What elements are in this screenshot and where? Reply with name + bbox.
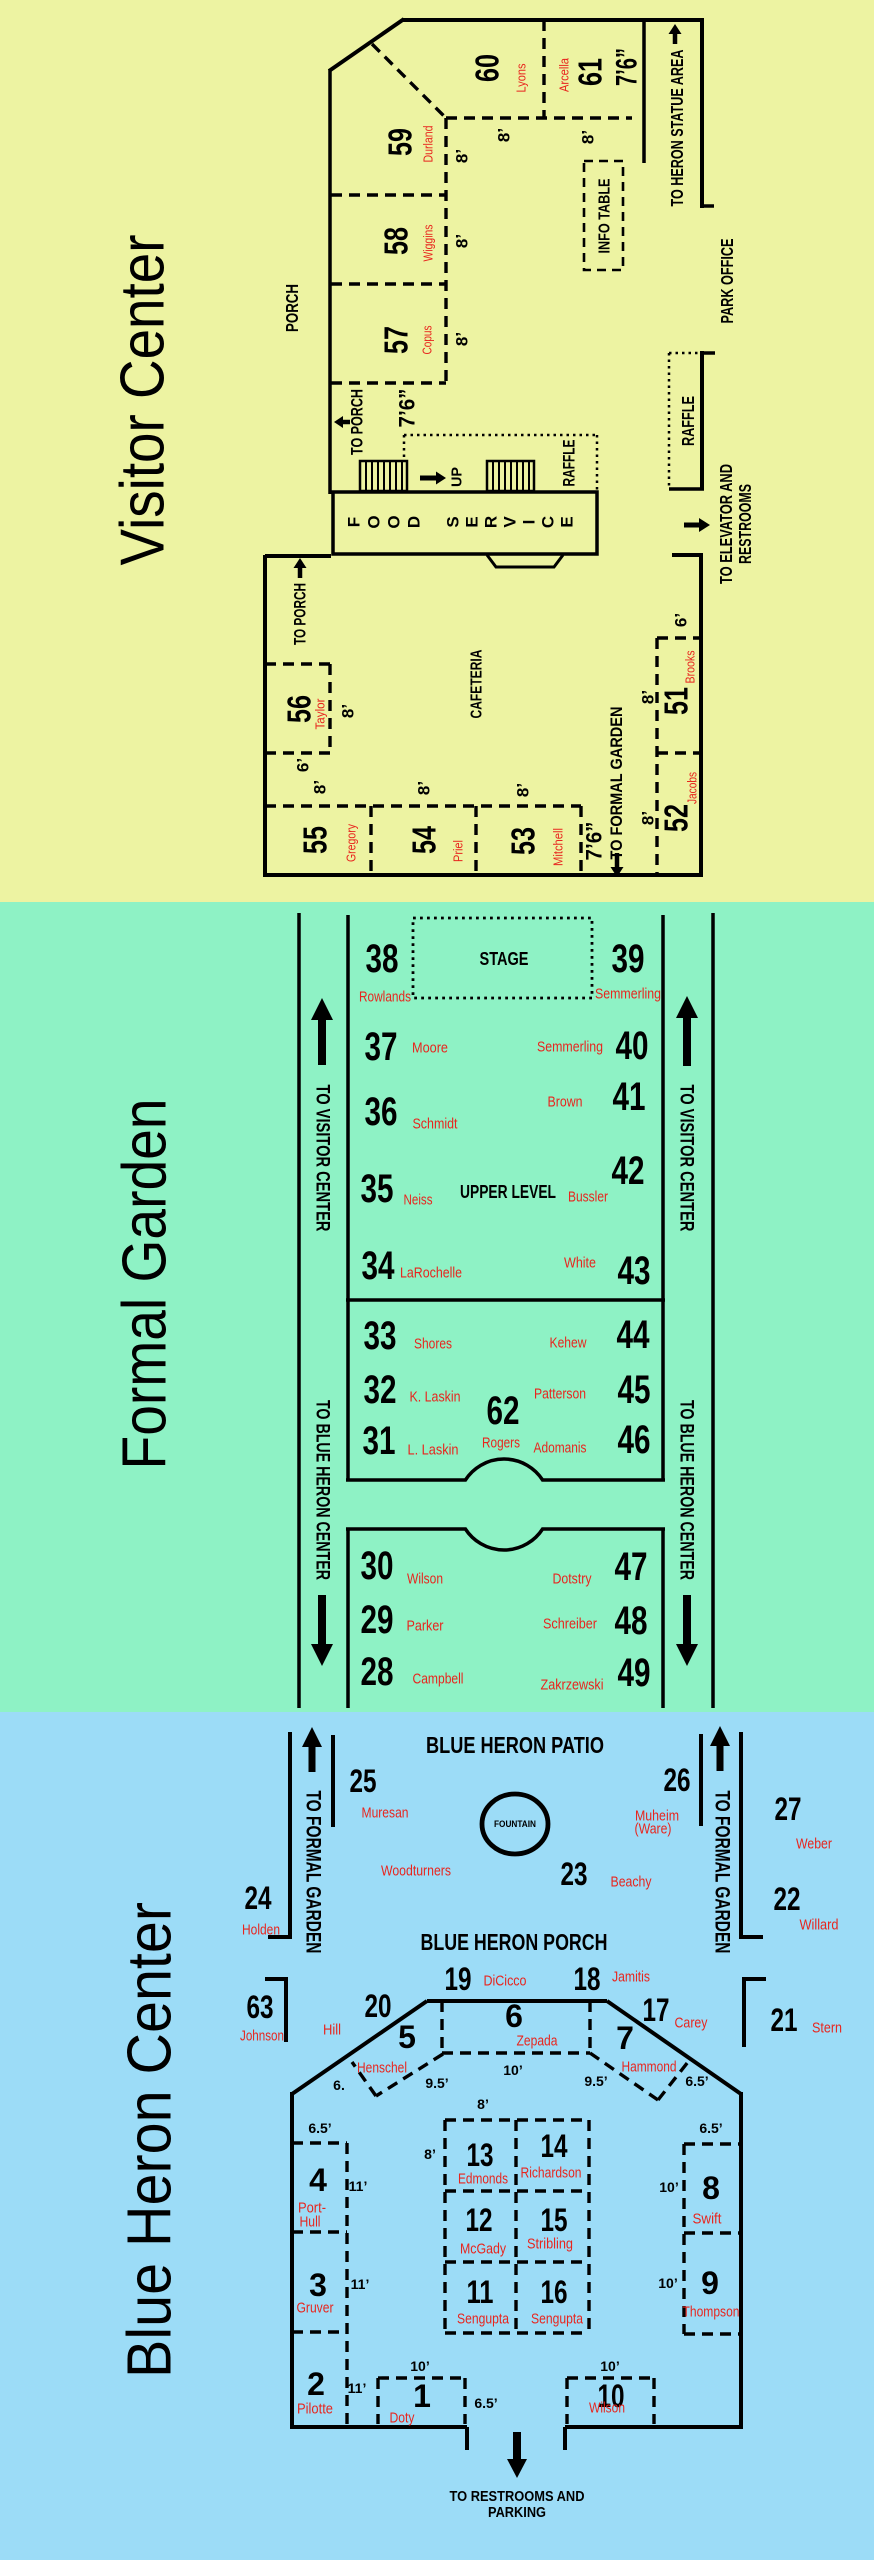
svg-text:Jacobs: Jacobs bbox=[685, 772, 700, 804]
svg-text:28: 28 bbox=[361, 1650, 394, 1694]
svg-text:8’: 8’ bbox=[639, 811, 658, 825]
svg-text:6: 6 bbox=[505, 1998, 523, 2034]
svg-text:8’: 8’ bbox=[495, 128, 514, 142]
svg-text:Visitor Center: Visitor Center bbox=[109, 235, 178, 566]
svg-text:1: 1 bbox=[413, 2378, 431, 2414]
svg-text:11’: 11’ bbox=[351, 2276, 370, 2292]
svg-text:Pilotte: Pilotte bbox=[297, 2401, 333, 2418]
svg-text:Dotstry: Dotstry bbox=[553, 1571, 592, 1588]
svg-text:E: E bbox=[558, 516, 577, 527]
svg-text:Wilson: Wilson bbox=[407, 1571, 443, 1588]
svg-text:Taylor: Taylor bbox=[313, 698, 328, 730]
svg-text:Mitchell: Mitchell bbox=[551, 828, 566, 866]
svg-text:40: 40 bbox=[616, 1024, 649, 1068]
svg-text:10’: 10’ bbox=[659, 2179, 678, 2195]
svg-text:DiCicco: DiCicco bbox=[484, 1973, 527, 1990]
svg-text:Schmidt: Schmidt bbox=[413, 1116, 459, 1133]
svg-text:CAFETERIA: CAFETERIA bbox=[469, 649, 486, 718]
svg-text:BLUE HERON PATIO: BLUE HERON PATIO bbox=[426, 1732, 604, 1758]
svg-text:S: S bbox=[444, 516, 463, 527]
svg-text:Arcella: Arcella bbox=[557, 57, 572, 92]
svg-text:8’: 8’ bbox=[514, 783, 533, 797]
svg-text:F: F bbox=[345, 517, 364, 527]
svg-text:9: 9 bbox=[701, 2265, 719, 2301]
svg-text:39: 39 bbox=[612, 937, 645, 981]
svg-text:61: 61 bbox=[572, 58, 609, 86]
svg-text:24: 24 bbox=[245, 1880, 272, 1916]
svg-text:8: 8 bbox=[702, 2170, 720, 2206]
svg-text:Rowlands: Rowlands bbox=[359, 989, 411, 1006]
svg-text:8’: 8’ bbox=[453, 149, 472, 163]
svg-text:14: 14 bbox=[541, 2128, 568, 2164]
svg-text:Beachy: Beachy bbox=[611, 1874, 652, 1891]
svg-text:6.5’: 6.5’ bbox=[308, 2120, 331, 2136]
svg-text:59: 59 bbox=[382, 128, 419, 156]
svg-text:Stribling: Stribling bbox=[527, 2236, 573, 2253]
svg-text:TO ELEVATOR AND: TO ELEVATOR AND bbox=[716, 464, 736, 584]
svg-text:36: 36 bbox=[365, 1090, 398, 1134]
svg-text:Semmerling: Semmerling bbox=[595, 986, 661, 1003]
svg-text:Gregory: Gregory bbox=[344, 824, 359, 862]
svg-text:Parker: Parker bbox=[407, 1618, 444, 1635]
svg-text:5: 5 bbox=[398, 2019, 416, 2055]
svg-text:6.5’: 6.5’ bbox=[699, 2120, 722, 2136]
svg-text:32: 32 bbox=[364, 1368, 397, 1412]
svg-text:Muresan: Muresan bbox=[362, 1805, 409, 1822]
svg-text:26: 26 bbox=[664, 1762, 691, 1798]
svg-text:49: 49 bbox=[618, 1651, 651, 1695]
svg-text:Hull: Hull bbox=[300, 2214, 321, 2231]
svg-text:K. Laskin: K. Laskin bbox=[410, 1389, 461, 1406]
svg-text:I: I bbox=[520, 520, 539, 525]
svg-text:Brown: Brown bbox=[548, 1094, 583, 1111]
svg-text:FOUNTAIN: FOUNTAIN bbox=[494, 1819, 536, 1829]
svg-text:Jamitis: Jamitis bbox=[612, 1969, 650, 1986]
svg-text:46: 46 bbox=[618, 1418, 651, 1462]
svg-text:Stern: Stern bbox=[812, 2020, 842, 2037]
svg-text:6.: 6. bbox=[333, 2077, 345, 2093]
svg-text:Doty: Doty bbox=[390, 2410, 415, 2427]
svg-text:47: 47 bbox=[615, 1545, 648, 1589]
svg-text:TO BLUE HERON CENTER: TO BLUE HERON CENTER bbox=[312, 1400, 333, 1580]
svg-text:LaRochelle: LaRochelle bbox=[400, 1265, 462, 1282]
svg-text:38: 38 bbox=[366, 937, 399, 981]
svg-text:V: V bbox=[501, 516, 520, 528]
svg-text:BLUE HERON PORCH: BLUE HERON PORCH bbox=[421, 1929, 608, 1955]
svg-text:PARKING: PARKING bbox=[488, 2505, 546, 2521]
svg-text:10’: 10’ bbox=[658, 2275, 677, 2291]
svg-text:Priel: Priel bbox=[451, 840, 466, 862]
svg-text:E: E bbox=[463, 516, 482, 527]
svg-text:C: C bbox=[539, 516, 558, 528]
svg-text:11: 11 bbox=[467, 2274, 494, 2310]
svg-text:TO PORCH: TO PORCH bbox=[291, 583, 310, 645]
svg-text:Edmonds: Edmonds bbox=[458, 2171, 508, 2188]
svg-text:Patterson: Patterson bbox=[534, 1386, 586, 1403]
svg-text:4: 4 bbox=[309, 2162, 327, 2198]
svg-text:TO PORCH: TO PORCH bbox=[348, 389, 367, 455]
svg-text:Richardson: Richardson bbox=[521, 2165, 582, 2182]
svg-text:23: 23 bbox=[561, 1856, 588, 1892]
svg-text:(Ware): (Ware) bbox=[635, 1821, 672, 1838]
svg-text:TO HERON STATUE AREA: TO HERON STATUE AREA bbox=[667, 49, 687, 206]
svg-text:22: 22 bbox=[774, 1881, 801, 1917]
svg-text:O: O bbox=[365, 515, 384, 528]
svg-text:8’: 8’ bbox=[339, 704, 358, 718]
svg-text:Kehew: Kehew bbox=[550, 1335, 587, 1352]
svg-text:Willard: Willard bbox=[800, 1917, 839, 1934]
svg-text:UP: UP bbox=[449, 467, 466, 487]
svg-text:58: 58 bbox=[378, 227, 415, 255]
svg-text:8’: 8’ bbox=[453, 234, 472, 248]
svg-text:18: 18 bbox=[574, 1961, 601, 1997]
svg-text:11’: 11’ bbox=[349, 2178, 368, 2194]
svg-text:Moore: Moore bbox=[412, 1040, 448, 1057]
svg-text:8’: 8’ bbox=[579, 130, 598, 144]
svg-text:9.5’: 9.5’ bbox=[425, 2075, 448, 2091]
svg-text:TO FORMAL GARDEN: TO FORMAL GARDEN bbox=[711, 1791, 734, 1954]
svg-text:R: R bbox=[482, 516, 501, 528]
svg-text:29: 29 bbox=[361, 1598, 394, 1642]
svg-text:10’: 10’ bbox=[410, 2358, 429, 2374]
svg-text:12: 12 bbox=[466, 2202, 493, 2238]
svg-text:60: 60 bbox=[469, 54, 506, 82]
svg-text:Wiggins: Wiggins bbox=[421, 224, 436, 261]
svg-text:8’: 8’ bbox=[453, 332, 472, 346]
svg-text:Swift: Swift bbox=[693, 2211, 723, 2228]
svg-text:19: 19 bbox=[445, 1961, 472, 1997]
svg-text:43: 43 bbox=[618, 1249, 651, 1293]
svg-text:Brooks: Brooks bbox=[683, 650, 698, 683]
svg-text:Zepada: Zepada bbox=[517, 2033, 559, 2050]
svg-text:Thompson: Thompson bbox=[683, 2304, 740, 2321]
svg-text:11’: 11’ bbox=[348, 2380, 367, 2396]
svg-text:7’6”: 7’6” bbox=[395, 389, 420, 428]
svg-text:57: 57 bbox=[378, 326, 415, 354]
svg-text:20: 20 bbox=[365, 1988, 392, 2024]
svg-text:TO VISITOR CENTER: TO VISITOR CENTER bbox=[676, 1085, 697, 1232]
svg-text:27: 27 bbox=[775, 1791, 802, 1827]
svg-text:TO FORMAL GARDEN: TO FORMAL GARDEN bbox=[608, 707, 626, 860]
svg-text:Copus: Copus bbox=[420, 325, 435, 354]
svg-text:51: 51 bbox=[658, 687, 695, 715]
svg-text:25: 25 bbox=[350, 1763, 377, 1799]
svg-text:TO RESTROOMS AND: TO RESTROOMS AND bbox=[450, 2489, 585, 2505]
svg-text:Carey: Carey bbox=[675, 2015, 708, 2032]
svg-text:55: 55 bbox=[297, 826, 334, 854]
svg-text:10’: 10’ bbox=[600, 2358, 619, 2374]
svg-text:42: 42 bbox=[612, 1149, 645, 1193]
svg-text:21: 21 bbox=[771, 2002, 798, 2038]
svg-text:17: 17 bbox=[643, 1992, 670, 2028]
svg-text:7’6”: 7’6” bbox=[611, 48, 644, 86]
svg-text:48: 48 bbox=[615, 1599, 648, 1643]
svg-text:Hill: Hill bbox=[323, 2022, 341, 2039]
svg-text:7’6”: 7’6” bbox=[582, 822, 607, 861]
svg-text:54: 54 bbox=[406, 826, 443, 854]
svg-text:Adomanis: Adomanis bbox=[534, 1440, 587, 1457]
svg-text:McGady: McGady bbox=[460, 2241, 506, 2258]
svg-text:53: 53 bbox=[505, 827, 542, 855]
svg-text:Johnson: Johnson bbox=[240, 2028, 284, 2045]
svg-text:6.5’: 6.5’ bbox=[685, 2073, 708, 2089]
svg-text:TO BLUE HERON CENTER: TO BLUE HERON CENTER bbox=[676, 1400, 697, 1580]
svg-text:Shores: Shores bbox=[414, 1336, 452, 1353]
svg-text:45: 45 bbox=[618, 1368, 651, 1412]
svg-text:TO FORMAL GARDEN: TO FORMAL GARDEN bbox=[302, 1791, 325, 1954]
svg-text:Semmerling: Semmerling bbox=[537, 1039, 603, 1056]
svg-text:Neiss: Neiss bbox=[404, 1192, 433, 1209]
svg-text:Weber: Weber bbox=[796, 1836, 832, 1853]
svg-text:15: 15 bbox=[541, 2202, 568, 2238]
svg-text:8’: 8’ bbox=[424, 2146, 436, 2162]
svg-text:6’: 6’ bbox=[672, 613, 691, 627]
svg-text:Rogers: Rogers bbox=[482, 1435, 520, 1452]
svg-text:Lyons: Lyons bbox=[514, 63, 529, 92]
svg-text:31: 31 bbox=[363, 1419, 396, 1463]
svg-text:PORCH: PORCH bbox=[282, 284, 302, 332]
svg-text:Sengupta: Sengupta bbox=[457, 2311, 510, 2328]
svg-text:30: 30 bbox=[361, 1544, 394, 1588]
svg-text:Henschel: Henschel bbox=[357, 2060, 407, 2077]
svg-text:STAGE: STAGE bbox=[480, 949, 529, 969]
svg-text:8’: 8’ bbox=[415, 781, 434, 795]
svg-text:16: 16 bbox=[541, 2274, 568, 2310]
svg-text:44: 44 bbox=[617, 1313, 651, 1357]
svg-text:L. Laskin: L. Laskin bbox=[408, 1442, 459, 1459]
svg-text:3: 3 bbox=[309, 2267, 327, 2303]
svg-text:6.5’: 6.5’ bbox=[474, 2395, 497, 2411]
svg-text:Gruver: Gruver bbox=[297, 2300, 334, 2317]
svg-text:RAFFLE: RAFFLE bbox=[678, 396, 698, 446]
svg-text:33: 33 bbox=[364, 1314, 397, 1358]
svg-text:INFO TABLE: INFO TABLE bbox=[597, 178, 614, 253]
svg-text:63: 63 bbox=[247, 1989, 274, 2025]
svg-text:35: 35 bbox=[361, 1167, 394, 1211]
svg-text:52: 52 bbox=[658, 804, 695, 832]
svg-text:Holden: Holden bbox=[242, 1922, 280, 1939]
svg-text:34: 34 bbox=[362, 1244, 396, 1288]
svg-text:Schreiber: Schreiber bbox=[543, 1616, 597, 1633]
svg-text:Hammond: Hammond bbox=[622, 2059, 677, 2076]
svg-text:PARK OFFICE: PARK OFFICE bbox=[717, 239, 737, 324]
svg-text:Zakrzewski: Zakrzewski bbox=[541, 1677, 604, 1694]
svg-text:8’: 8’ bbox=[639, 690, 658, 704]
svg-text:8’: 8’ bbox=[311, 780, 330, 794]
svg-text:TO VISITOR CENTER: TO VISITOR CENTER bbox=[312, 1085, 333, 1232]
svg-text:Bussler: Bussler bbox=[568, 1189, 608, 1206]
svg-text:9.5’: 9.5’ bbox=[584, 2073, 607, 2089]
svg-text:RAFFLE: RAFFLE bbox=[560, 440, 579, 487]
svg-text:Blue Heron Center: Blue Heron Center bbox=[116, 1902, 185, 2378]
svg-text:62: 62 bbox=[487, 1389, 520, 1433]
svg-text:8’: 8’ bbox=[477, 2096, 489, 2112]
svg-text:RESTROOMS: RESTROOMS bbox=[735, 484, 755, 564]
svg-text:13: 13 bbox=[467, 2137, 494, 2173]
svg-text:7: 7 bbox=[616, 2020, 634, 2056]
svg-text:Wilson: Wilson bbox=[589, 2400, 625, 2417]
svg-text:UPPER LEVEL: UPPER LEVEL bbox=[460, 1182, 556, 1202]
svg-text:Woodturners: Woodturners bbox=[381, 1863, 451, 1880]
svg-text:2: 2 bbox=[307, 2366, 325, 2402]
svg-text:Sengupta: Sengupta bbox=[531, 2311, 584, 2328]
svg-text:O: O bbox=[385, 515, 404, 528]
svg-text:37: 37 bbox=[365, 1025, 398, 1069]
svg-text:White: White bbox=[564, 1255, 596, 1272]
svg-text:Formal Garden: Formal Garden bbox=[111, 1099, 180, 1470]
svg-text:D: D bbox=[405, 516, 424, 528]
svg-text:Durland: Durland bbox=[421, 126, 436, 163]
svg-text:41: 41 bbox=[613, 1075, 646, 1119]
svg-text:10’: 10’ bbox=[503, 2062, 522, 2078]
svg-text:6’: 6’ bbox=[294, 758, 313, 772]
svg-text:Campbell: Campbell bbox=[413, 1671, 464, 1688]
